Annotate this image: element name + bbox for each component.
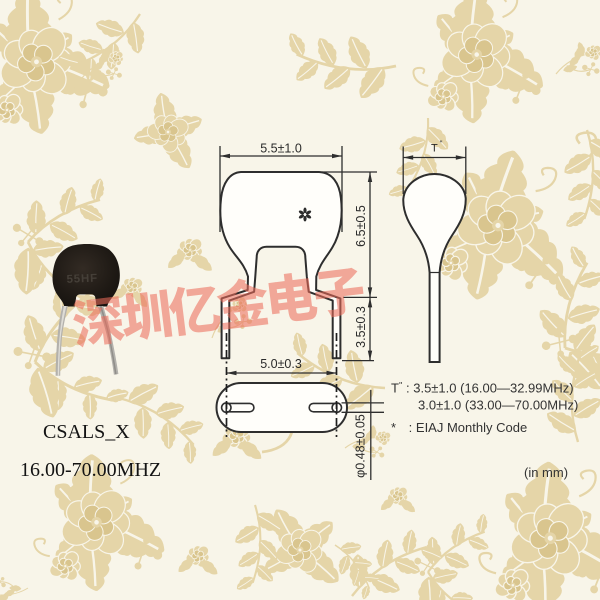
svg-text:T'' : 3.5±1.0 (16.00—32.99MHz): T'' : 3.5±1.0 (16.00—32.99MHz) [391,381,574,396]
svg-text:5.5±1.0: 5.5±1.0 [260,142,302,156]
svg-text:T: T [431,143,438,155]
svg-text:'': '' [440,140,444,149]
svg-text:* : EIAJ Monthly Code: * : EIAJ Monthly Code [391,420,527,435]
svg-text:3.0±1.0 (33.00—70.00MHz): 3.0±1.0 (33.00—70.00MHz) [418,398,578,413]
svg-text:3.5±0.3: 3.5±0.3 [354,306,368,348]
svg-text:5.0±0.3: 5.0±0.3 [260,357,302,371]
svg-text:(in mm): (in mm) [524,465,568,480]
svg-text:φ0.48±0.05: φ0.48±0.05 [353,414,367,478]
svg-text:6.5±0.5: 6.5±0.5 [354,205,368,247]
svg-text:55HF: 55HF [66,272,98,285]
